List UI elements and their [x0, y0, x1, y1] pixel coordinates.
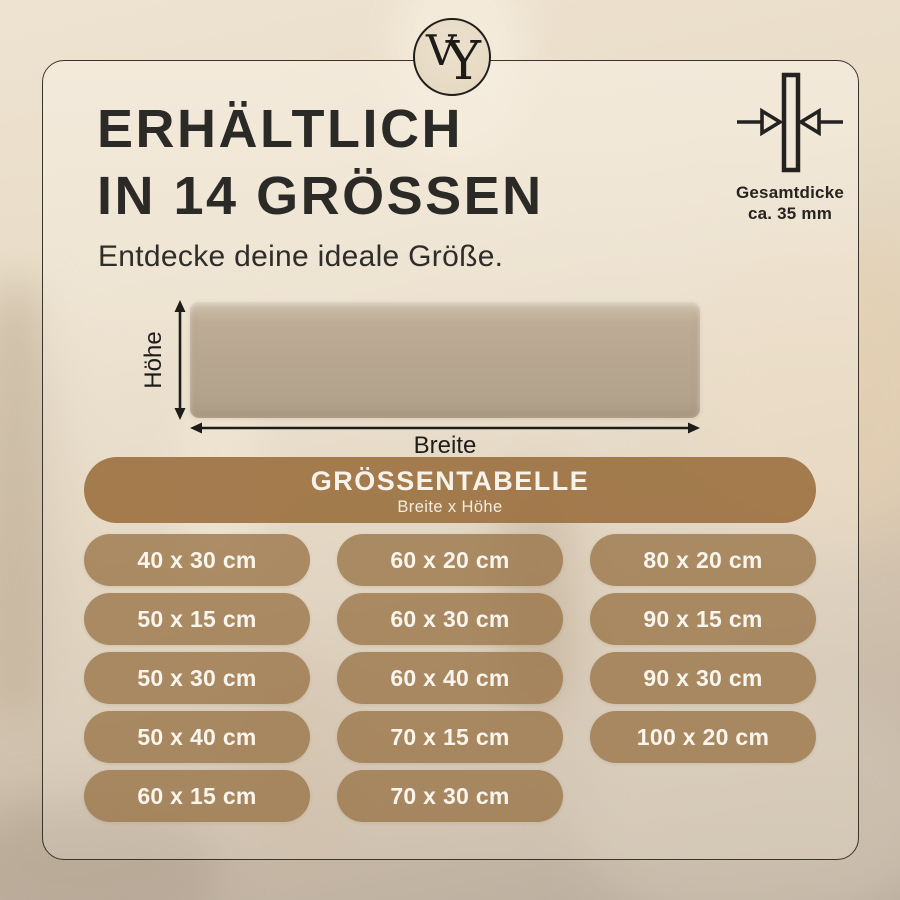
size-pill-label: 90 x 15 cm	[643, 606, 762, 633]
size-table-title: GRÖSSENTABELLE	[84, 466, 816, 497]
size-pill-label: 50 x 30 cm	[137, 665, 256, 692]
size-pill: 90 x 30 cm	[590, 652, 816, 704]
size-grid: 40 x 30 cm50 x 15 cm50 x 30 cm50 x 40 cm…	[84, 534, 816, 822]
size-pill: 70 x 30 cm	[337, 770, 563, 822]
thickness-icon	[731, 72, 849, 176]
thickness-label-line2: ca. 35 mm	[720, 203, 860, 224]
size-pill-label: 100 x 20 cm	[637, 724, 769, 751]
size-pill: 50 x 40 cm	[84, 711, 310, 763]
size-pill: 60 x 15 cm	[84, 770, 310, 822]
size-table-subtitle: Breite x Höhe	[84, 498, 816, 517]
thickness-label-line1: Gesamtdicke	[720, 182, 860, 203]
thickness-info: Gesamtdicke ca. 35 mm	[720, 72, 860, 224]
size-pill: 80 x 20 cm	[590, 534, 816, 586]
size-pill: 40 x 30 cm	[84, 534, 310, 586]
size-pill-label: 60 x 40 cm	[390, 665, 509, 692]
size-pill-label: 60 x 15 cm	[137, 783, 256, 810]
size-pill: 50 x 30 cm	[84, 652, 310, 704]
title-line-1: ERHÄLTLICH	[97, 96, 544, 163]
size-pill-label: 50 x 15 cm	[137, 606, 256, 633]
logo-letter-y: Y	[446, 35, 481, 88]
size-pill-label: 90 x 30 cm	[643, 665, 762, 692]
size-pill-label: 60 x 30 cm	[390, 606, 509, 633]
page-subtitle: Entdecke deine ideale Größe.	[98, 240, 503, 274]
title-line-2: IN 14 GRÖSSEN	[97, 163, 544, 230]
size-pill-label: 50 x 40 cm	[137, 724, 256, 751]
page-title: ERHÄLTLICH IN 14 GRÖSSEN	[97, 96, 544, 230]
size-pill: 60 x 20 cm	[337, 534, 563, 586]
size-pill: 50 x 15 cm	[84, 593, 310, 645]
size-pill: 60 x 40 cm	[337, 652, 563, 704]
size-pill-label: 70 x 30 cm	[390, 783, 509, 810]
size-pill-label: 40 x 30 cm	[137, 547, 256, 574]
size-grid-column-1: 40 x 30 cm50 x 15 cm50 x 30 cm50 x 40 cm…	[84, 534, 310, 822]
width-label: Breite	[190, 432, 700, 460]
size-pill: 70 x 15 cm	[337, 711, 563, 763]
size-pill: 90 x 15 cm	[590, 593, 816, 645]
size-pill: 60 x 30 cm	[337, 593, 563, 645]
size-pill-label: 80 x 20 cm	[643, 547, 762, 574]
size-table-header: GRÖSSENTABELLE Breite x Höhe	[84, 457, 816, 523]
size-pill-label: 70 x 15 cm	[390, 724, 509, 751]
size-grid-column-2: 60 x 20 cm60 x 30 cm60 x 40 cm70 x 15 cm…	[337, 534, 563, 822]
brand-logo-vy: V Y	[413, 18, 491, 96]
size-pill: 100 x 20 cm	[590, 711, 816, 763]
size-grid-column-3: 80 x 20 cm90 x 15 cm90 x 30 cm100 x 20 c…	[590, 534, 816, 822]
height-label: Höhe	[124, 330, 184, 390]
wall-panel-image	[190, 302, 700, 418]
size-pill-label: 60 x 20 cm	[390, 547, 509, 574]
